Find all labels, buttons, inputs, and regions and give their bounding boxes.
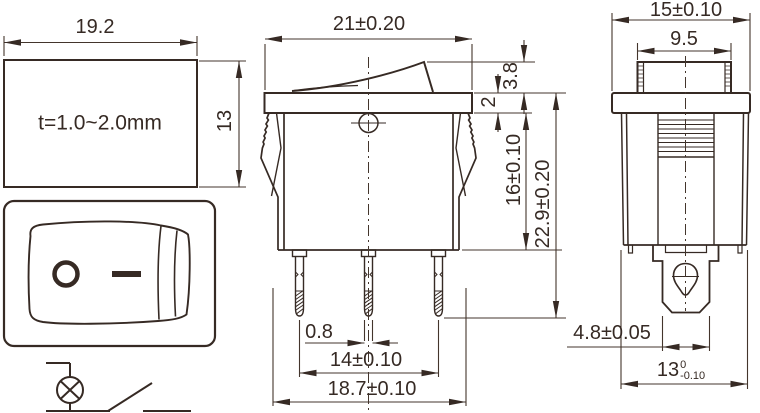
pin-hatch <box>296 291 304 314</box>
dim-cutout-height: 13 <box>215 110 235 132</box>
dim-end-body-width-nominal: 13 <box>657 360 679 380</box>
dim-end-rocker-width: 9.5 <box>670 29 698 49</box>
front-face-view <box>4 201 215 346</box>
pin-hatch <box>435 291 443 314</box>
end-rocker-knob <box>638 62 732 93</box>
rocker-face-edge <box>158 226 161 320</box>
rocker-switch-dimension-drawing: 19.2 13 t=1.0~2.0mm 21±0.20 2 3.8 16±0.1… <box>0 0 760 413</box>
switch-lever <box>108 383 152 411</box>
dim-body-depth: 16±0.10 <box>504 134 524 206</box>
dim-main-body-width: 18.7±0.10 <box>328 379 417 399</box>
end-left-tab <box>622 113 629 245</box>
thickness-note: t=1.0~2.0mm <box>38 113 162 134</box>
on-symbol-icon <box>112 271 141 277</box>
end-view-body <box>612 62 750 313</box>
dim-main-width: 21±0.20 <box>333 14 405 34</box>
dim-pin-thickness: 0.8 <box>305 322 333 342</box>
knob-side-serrations <box>638 66 732 86</box>
dim-end-body-width-tolerance: 0 -0.10 <box>680 360 705 382</box>
dim-end-flange-width: 15±0.10 <box>650 0 722 20</box>
rocker-profile <box>292 62 433 92</box>
circuit-schematic <box>46 363 191 411</box>
end-flange <box>612 93 750 113</box>
dim-rocker-height: 3.8 <box>501 62 521 90</box>
tol-lower: -0.10 <box>680 371 705 382</box>
dim-overall-height: 22.9±0.20 <box>533 160 553 249</box>
dim-terminal-width: 4.8±0.05 <box>573 323 651 343</box>
dim-end-body-width: 13 0 -0.10 <box>657 359 705 381</box>
off-symbol-icon <box>55 263 78 286</box>
end-right-tab <box>742 113 749 245</box>
dim-flange-thickness: 2 <box>479 96 499 107</box>
left-snap-tab <box>261 113 278 250</box>
main-view-dimensions <box>265 39 566 406</box>
rocker-flank-crease <box>175 231 177 317</box>
dim-cutout-width: 19.2 <box>76 17 115 37</box>
right-snap-tab <box>459 113 476 250</box>
dim-pin-pitch: 14±0.10 <box>330 350 402 370</box>
